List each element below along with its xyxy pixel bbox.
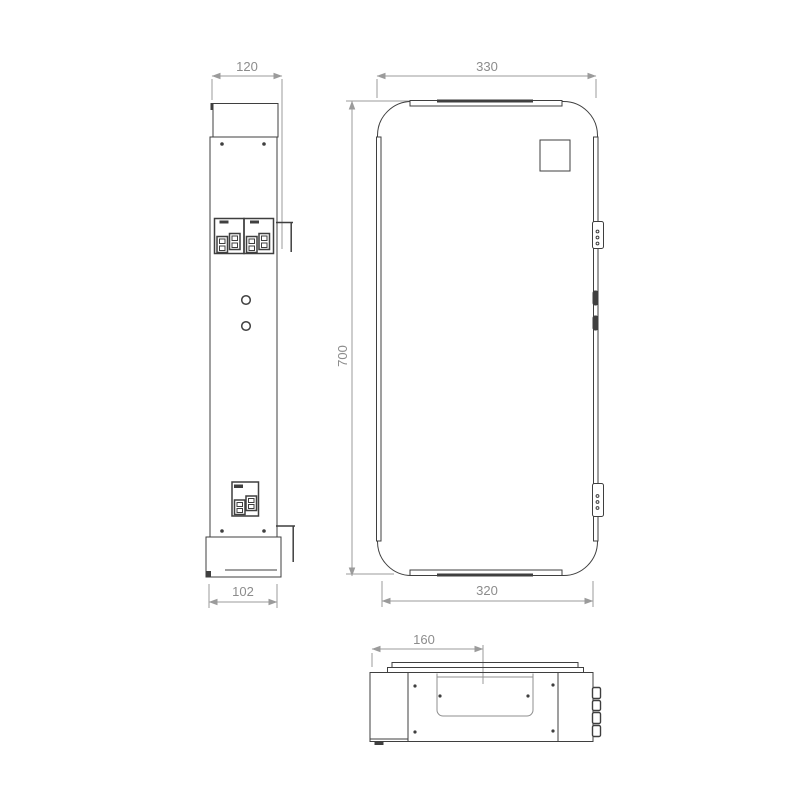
breaker-rocker bbox=[230, 234, 241, 250]
dim-label-side-width-top: 120 bbox=[236, 59, 258, 74]
indicator-light bbox=[242, 322, 251, 331]
mounting-bracket-bottom bbox=[276, 526, 295, 562]
hinge bbox=[593, 316, 599, 331]
top-body bbox=[370, 673, 593, 742]
top-front-panel-edge bbox=[388, 663, 584, 673]
terminal bbox=[593, 726, 601, 737]
terminal bbox=[593, 688, 601, 699]
indicator-light bbox=[242, 296, 251, 305]
technical-drawing: 120 bbox=[0, 0, 800, 800]
front-right-edge bbox=[594, 137, 599, 541]
front-top-slot bbox=[410, 100, 562, 107]
side-view: 120 bbox=[206, 59, 295, 608]
side-body bbox=[210, 137, 277, 537]
drawing-canvas: 120 bbox=[0, 0, 800, 800]
front-panel bbox=[378, 102, 598, 576]
side-bottom-cap bbox=[206, 537, 281, 577]
side-top-screws bbox=[220, 142, 266, 146]
terminal bbox=[593, 713, 601, 724]
front-display-square bbox=[540, 140, 570, 171]
front-dim-width-top: 330 bbox=[377, 59, 596, 98]
dim-label-front-height: 700 bbox=[335, 345, 350, 367]
breaker-rocker bbox=[259, 234, 270, 250]
front-right-tab-bottom bbox=[593, 484, 604, 517]
top-terminals bbox=[593, 688, 601, 737]
terminal bbox=[593, 701, 601, 711]
front-view: 330 700 bbox=[335, 59, 604, 607]
front-left-edge bbox=[377, 137, 382, 541]
breaker-rocker bbox=[217, 237, 228, 253]
front-right-tab-top bbox=[593, 222, 604, 249]
top-inner-panel bbox=[437, 674, 533, 717]
breaker-rocker bbox=[246, 496, 257, 511]
breaker-block-top bbox=[215, 219, 274, 254]
side-top-cap bbox=[211, 103, 279, 137]
top-dim-center-offset: 160 bbox=[372, 632, 483, 684]
breaker-rocker bbox=[235, 500, 246, 515]
side-dim-width-bottom: 102 bbox=[209, 584, 277, 608]
breaker-block-bottom bbox=[232, 482, 259, 516]
dim-label-front-width-top: 330 bbox=[476, 59, 498, 74]
hinge bbox=[593, 291, 599, 306]
mounting-bracket-top bbox=[276, 223, 293, 253]
front-dim-width-bottom: 320 bbox=[382, 581, 593, 607]
breaker-rocker bbox=[247, 237, 258, 253]
dim-label-side-width-bottom: 102 bbox=[232, 584, 254, 599]
front-bottom-slot bbox=[410, 570, 562, 577]
dim-label-top-center-offset: 160 bbox=[413, 632, 435, 647]
top-view: 160 bbox=[370, 632, 601, 745]
indicator-lights bbox=[242, 296, 251, 331]
side-bottom-screws bbox=[220, 529, 266, 533]
dim-label-front-width-bottom: 320 bbox=[476, 583, 498, 598]
